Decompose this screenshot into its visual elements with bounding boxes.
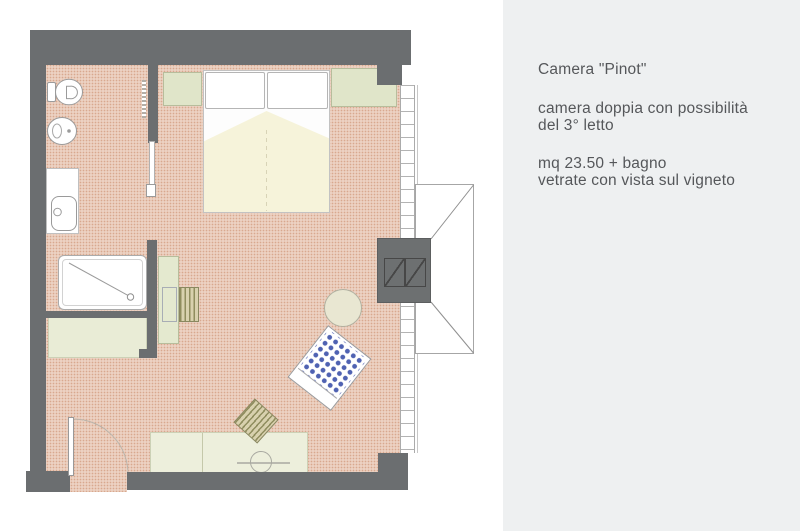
shower-tray-inner [62,259,143,306]
entry-door-leaf [68,417,74,476]
nightstand-left [163,72,202,106]
shower-tray [58,255,147,310]
room-description-line1: camera doppia con possibilità [538,100,748,117]
towel-radiator [142,80,146,118]
dormer-pane-right [405,258,426,287]
round-table [324,289,362,327]
pillow-left [205,72,265,109]
desk-chair [179,287,199,322]
pier-bottom-right [378,453,408,490]
wall-stub [139,349,147,358]
closet-bench [48,317,147,358]
sliding-door [149,141,155,185]
sliding-door-handle [146,184,156,197]
pier-top-right [377,65,402,85]
desk-inner-outline [162,287,177,322]
bathroom-partition-upper [148,63,158,143]
entry-door-threshold-floor [70,472,127,492]
wall-top [30,30,411,65]
sideboard-divider [202,433,203,473]
room-details-line2: vetrate con vista sul vigneto [538,172,735,189]
dormer-pane-left [384,258,405,287]
wall-bottom [127,472,378,490]
wall-left [30,30,46,472]
floor-plan-page: Camera "Pinot" camera doppia con possibi… [0,0,800,531]
bathroom-wall-bottom [46,311,147,318]
dormer-window-block [377,238,431,303]
room-title: Camera "Pinot" [538,61,647,78]
wall-bottom-left-corner [26,471,70,492]
bathroom-partition-lower [147,240,157,358]
washbasin [51,196,77,231]
info-panel: Camera "Pinot" camera doppia con possibi… [503,0,800,531]
sideboard [150,432,308,474]
pillow-right [267,72,328,109]
room-description-line2: del 3° letto [538,117,614,134]
room-details-line1: mq 23.50 + bagno [538,155,667,172]
